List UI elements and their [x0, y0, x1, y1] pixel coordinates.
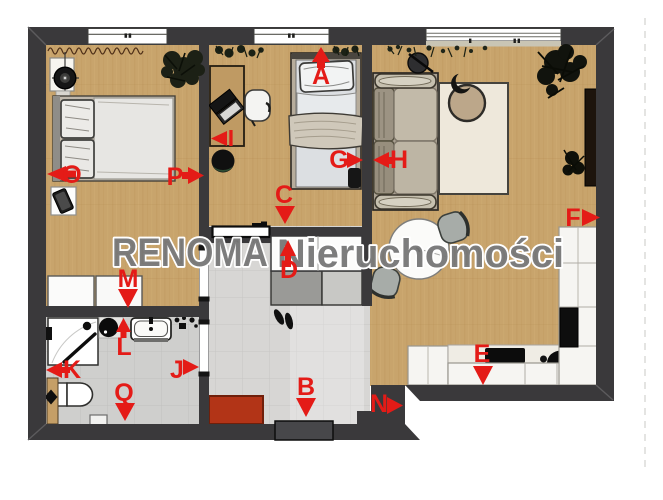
svg-text:Q: Q [114, 379, 133, 407]
svg-text:P: P [167, 163, 184, 191]
svg-text:C: C [275, 181, 293, 209]
svg-text:B: B [297, 373, 315, 401]
svg-text:O: O [62, 161, 81, 189]
svg-text:F: F [565, 204, 580, 232]
svg-text:Nieruchomości: Nieruchomości [277, 232, 564, 276]
svg-text:E: E [474, 340, 491, 368]
svg-text:H: H [390, 146, 408, 174]
svg-text:N: N [370, 390, 388, 418]
svg-text:D: D [280, 256, 298, 284]
svg-text:L: L [116, 333, 131, 361]
svg-text:I: I [228, 125, 234, 151]
svg-text:A: A [312, 62, 330, 90]
svg-text:J: J [170, 356, 184, 384]
svg-text:K: K [63, 356, 81, 384]
svg-text:M: M [118, 265, 139, 293]
svg-text:G: G [329, 146, 348, 174]
